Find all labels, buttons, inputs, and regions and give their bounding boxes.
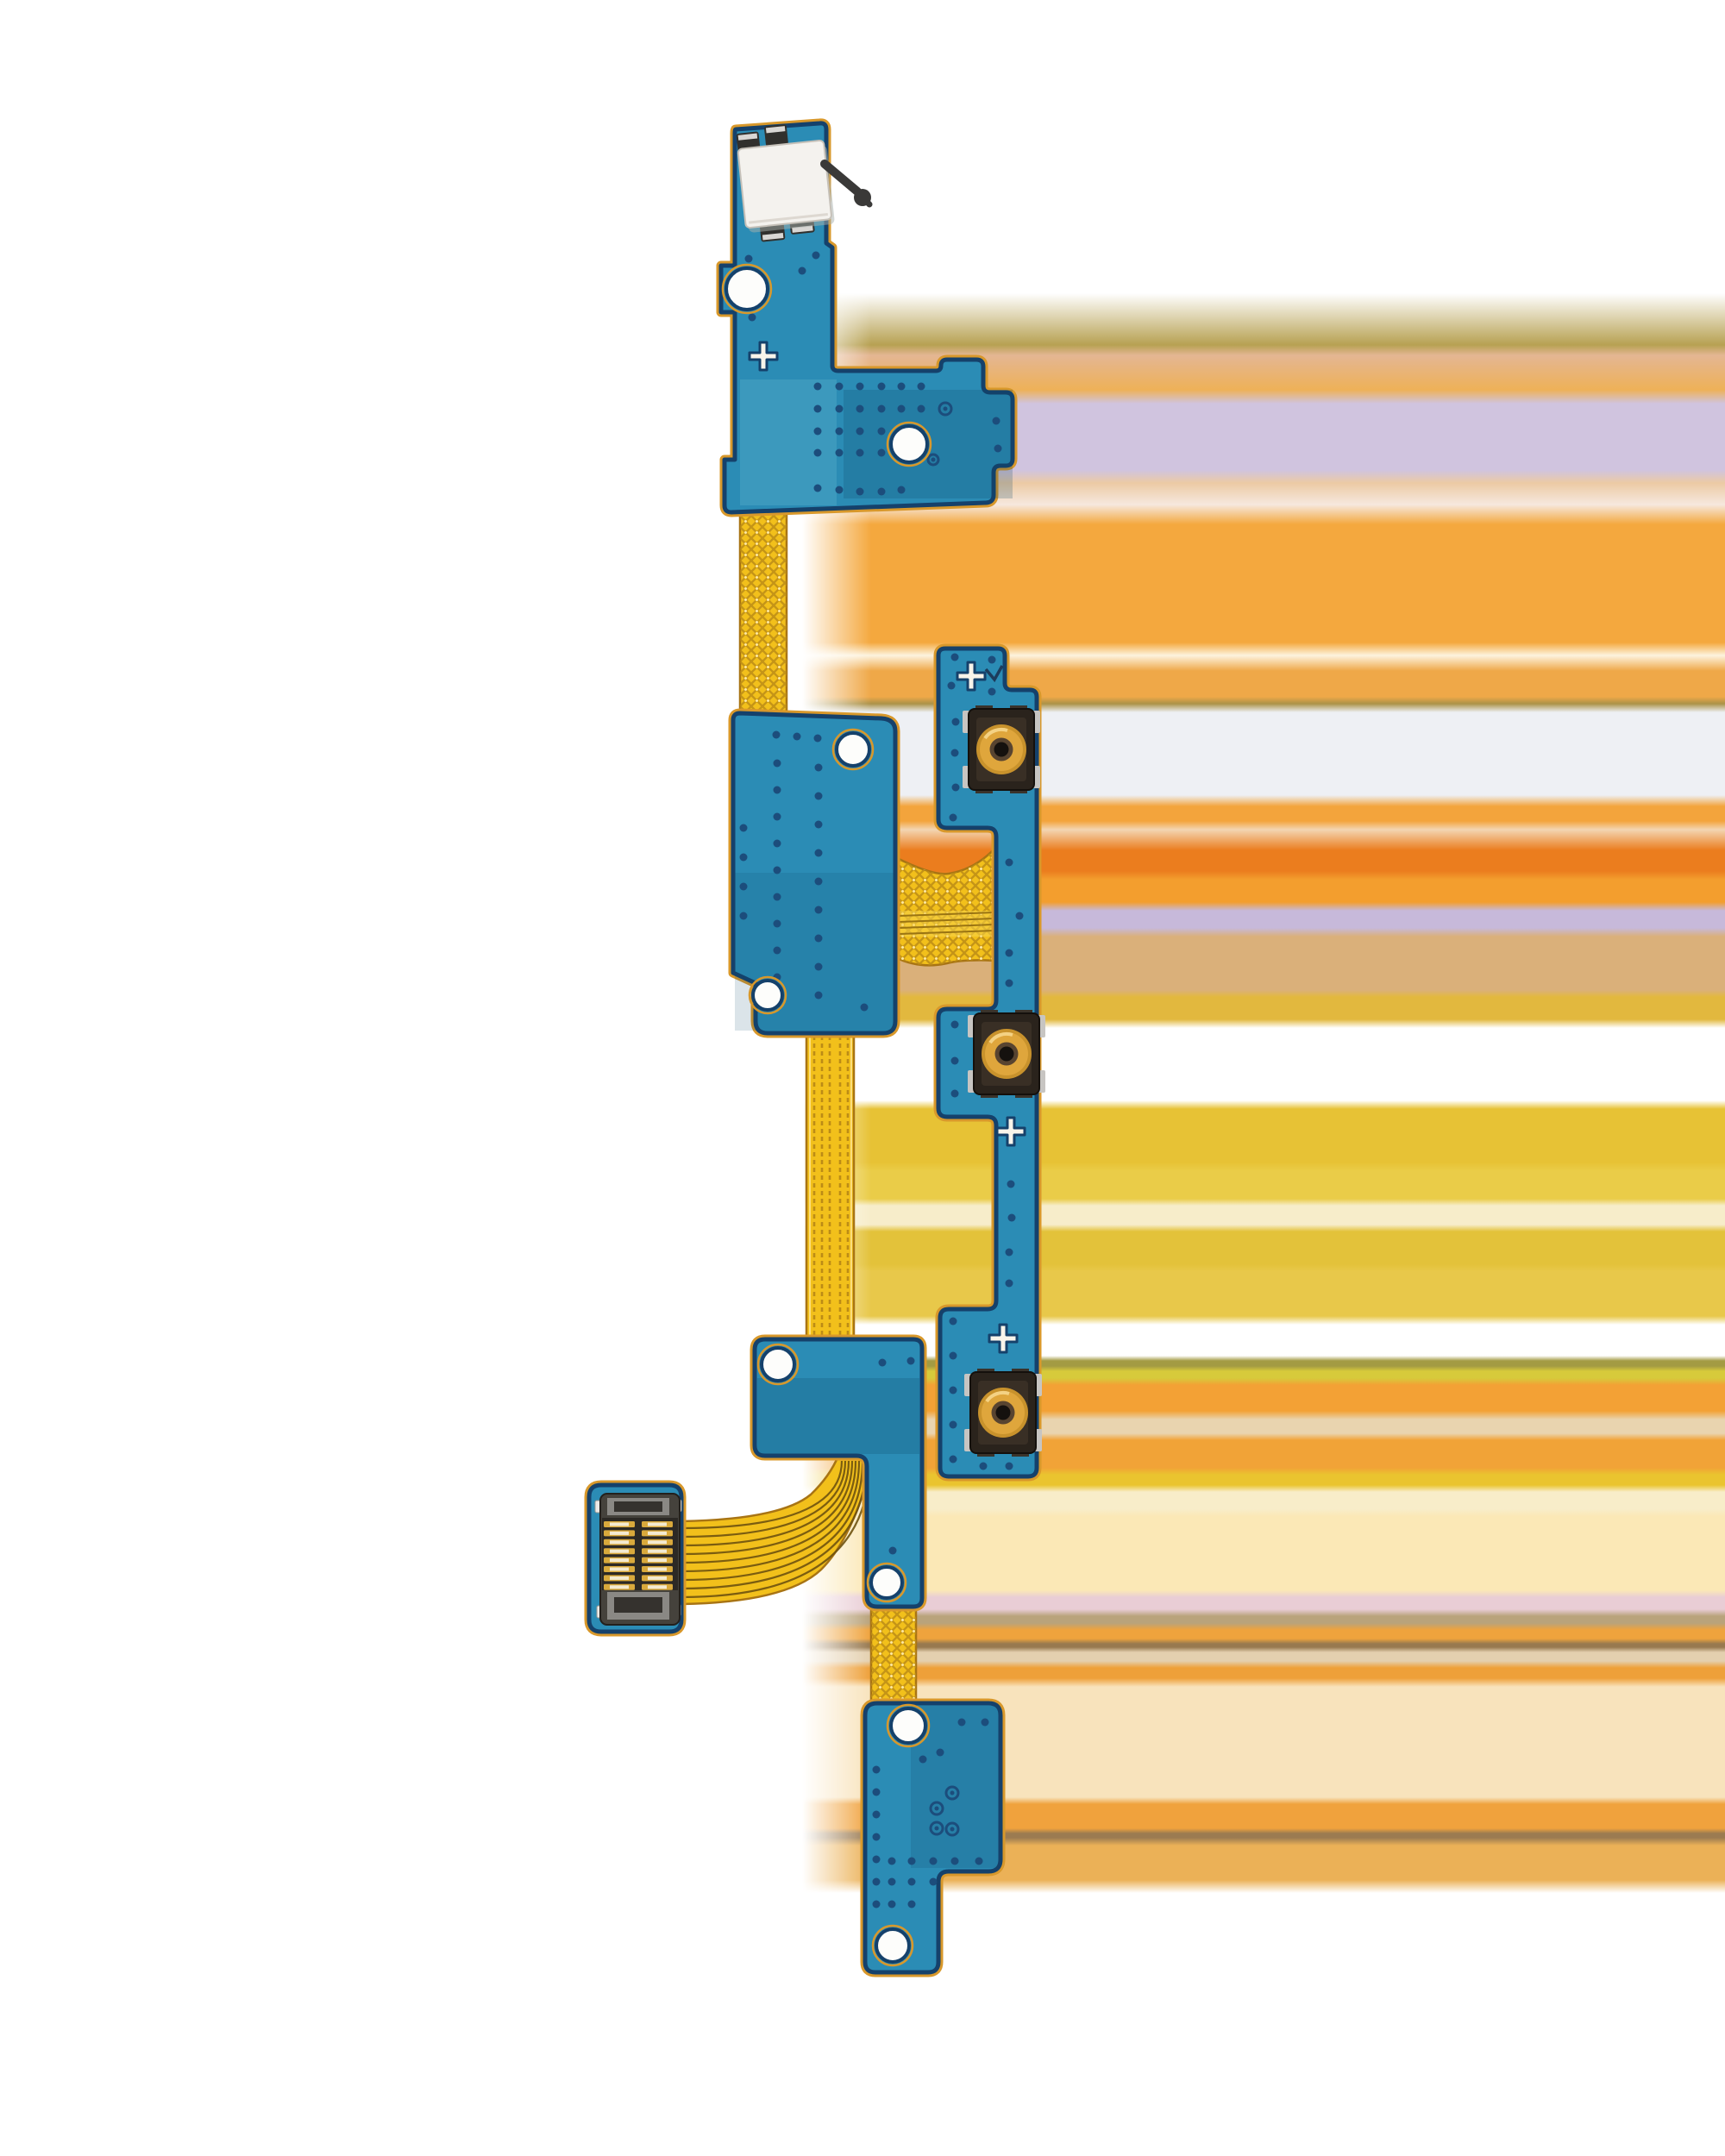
via-dot [740,854,748,862]
via-dot [774,760,781,768]
via-dot [873,1901,881,1908]
flex-cable-illustration [0,0,1725,2156]
screw-hole [876,1929,909,1962]
via-dot [908,1858,916,1865]
via-dot [856,449,864,457]
via-dot [994,445,1002,453]
via-dot [878,383,886,391]
switch-plunger [994,743,1009,757]
via-dot [878,449,886,457]
via-dot [873,1811,881,1819]
via-dot [980,1463,988,1470]
via-dot [774,893,781,901]
via-dot [888,1901,896,1908]
via-dot [950,814,957,822]
flex-ribbon-middle [806,1026,854,1347]
via-dot [774,813,781,821]
via-dot [898,383,906,391]
via-dot [907,1357,915,1365]
via-dot [774,947,781,955]
switch-plunger [996,1406,1011,1420]
via-dot [856,405,864,413]
tactile-switch-2 [968,1010,1045,1098]
via-dot [873,1789,881,1796]
via-dot [950,1456,957,1463]
via-dot [950,1421,957,1429]
via-dot [952,718,960,726]
via-dot [950,1318,957,1326]
via-dot [815,992,823,1000]
h-bridge-flex [895,845,998,965]
via-dot [836,428,844,436]
via-dot [918,405,925,413]
via-dot [815,878,823,886]
via-dot [814,383,822,391]
via-dot [815,821,823,829]
via-dot [773,731,781,739]
via-dot [861,1004,869,1012]
via-dot [951,1090,959,1098]
via-dot [774,920,781,928]
via-dot [930,1878,938,1886]
via-dot [856,383,864,391]
via-dot [878,488,886,496]
via-dot [950,1387,957,1395]
via-dot [774,867,781,874]
via-dot [815,906,823,914]
via-dot [740,883,748,891]
via-dot [814,735,822,743]
via-dot [1016,912,1024,920]
flex-ribbon-bottom [871,1602,916,1709]
via-dot [988,688,996,696]
screw-hole [891,426,927,462]
screw-hole [726,268,768,310]
connector-curved-flex [681,1456,873,1604]
via-dot [815,793,823,800]
via-dot [1006,859,1013,867]
via-dot [745,255,753,263]
via-dot [836,405,844,413]
via-dot [919,1756,927,1764]
via-dot [1006,1249,1013,1257]
via-dot [951,1057,959,1065]
via-dot [814,485,822,492]
via-dot [951,1021,959,1029]
via-dot [774,787,781,794]
via-dot [888,1858,896,1865]
via-dot [908,1901,916,1908]
tactile-switch-3 [964,1369,1042,1457]
via-dot [1006,950,1013,957]
via-dot [898,405,906,413]
via-dot [1008,1214,1016,1222]
screw-hole [837,733,869,766]
via-dot [958,1719,966,1727]
via-dot [982,1719,989,1727]
via-dot [951,654,959,661]
via-dot [937,1749,944,1757]
screw-hole [762,1348,794,1381]
via-dot [948,682,956,690]
switch-plunger [1000,1047,1014,1062]
via-dot [815,935,823,943]
product-photo-stage [0,0,1725,2156]
via-dot [873,1833,881,1841]
via-dot [888,1878,896,1886]
screw-hole [871,1567,902,1598]
microphone-component [736,122,835,244]
via-dot [799,267,806,275]
via-dot [930,1858,938,1865]
via-dot [740,824,748,832]
via-dot [814,428,822,436]
via-dot [1006,980,1013,987]
via-dot [815,963,823,971]
via-dot [856,428,864,436]
flex-ribbon-top [740,507,787,719]
via-dot [993,417,1000,425]
via-dot [774,840,781,848]
via-dot [879,1359,887,1367]
via-dot [988,656,996,664]
via-dot [951,1858,959,1865]
via-dot [950,1352,957,1360]
via-dot [878,428,886,436]
via-dot [815,849,823,857]
via-dot [951,749,959,757]
via-dot [836,383,844,391]
via-dot [873,1878,881,1886]
via-dot [836,449,844,457]
via-dot [749,314,756,322]
via-dot [1007,1181,1015,1188]
screw-hole [891,1708,925,1743]
via-dot [952,784,960,792]
via-dot [908,1878,916,1886]
via-dot [814,405,822,413]
via-dot [878,405,886,413]
via-dot [740,912,748,920]
board-to-board-connector [595,1494,681,1625]
via-dot [1006,1463,1013,1470]
via-dot [814,449,822,457]
via-dot [873,1856,881,1864]
via-dot [836,486,844,494]
via-dot [898,486,906,494]
via-dot [1006,1280,1013,1288]
via-dot [918,383,925,391]
via-dot [889,1547,897,1555]
via-dot [873,1766,881,1774]
via-dot [793,733,801,741]
via-dot [975,1858,983,1865]
screw-hole [753,981,782,1010]
tactile-switch-1 [963,705,1040,793]
via-dot [815,764,823,772]
via-dot [812,252,820,260]
via-dot [856,488,864,496]
